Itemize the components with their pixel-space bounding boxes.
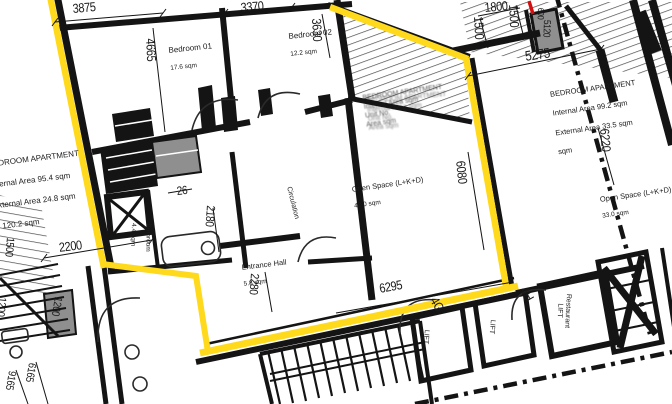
- apartment-block-right: BEDROOM APARTMENT Internal Area 99.2 sqm…: [548, 68, 645, 167]
- room-area: 4.4 sqm: [128, 223, 137, 251]
- dimension-label-1500-b: 1500: [505, 4, 522, 28]
- dimension-label-3370: 3370: [240, 0, 264, 16]
- floor-plan-drawing: [0, 0, 672, 404]
- room-label-bedroom02: Bedroom 02 12.2 sqm: [287, 17, 335, 67]
- apartment-external-area: External Area 24.8 sqm: [0, 190, 85, 211]
- left-double-wall-a: [88, 266, 106, 404]
- dimension-label-5120: 5120: [539, 20, 552, 38]
- room-area: 5.8 sqm: [243, 275, 289, 288]
- apartment-total-area: T 120.2 sqm: [0, 211, 87, 232]
- room-area: 42.0 sqm: [354, 193, 427, 211]
- apartment-total-area: sqm: [557, 136, 644, 158]
- center-right-wall: [472, 58, 512, 287]
- room-area: 17.6 sqm: [170, 60, 214, 72]
- apartment-internal-area: Internal Area 95.4 sqm: [0, 170, 82, 191]
- right-core-wall: [662, 248, 672, 340]
- dimension-label-3875: 3875: [72, 0, 96, 17]
- room-area: 12.2 sqm: [290, 46, 334, 58]
- apartment-block-left: BEDROOM APARTMENT Internal Area 95.4 sqm…: [0, 139, 88, 243]
- door-leaf-bedroom: [221, 96, 238, 132]
- dimension-label-4665: 4665: [142, 38, 159, 62]
- dimension-label-600: 600: [535, 8, 546, 20]
- apartment-name: BEDROOM APARTMENT: [0, 149, 80, 170]
- basin: [1, 328, 28, 344]
- dimension-label-1500-a: 1500: [470, 16, 487, 40]
- room-label-entrance-hall: Entrance Hall 5.8 sqm: [240, 249, 290, 298]
- room-label-bedroom01: Bedroom 01 17.6 sqm: [167, 31, 215, 81]
- door-frame-a: [198, 85, 216, 131]
- room-name: Entrance Hall: [241, 257, 287, 271]
- dimension-label-2180: 2180: [202, 205, 218, 227]
- route-right-vertical: [466, 58, 506, 286]
- room-label-lift-a: LIFT: [420, 329, 430, 344]
- stair-landing-rail-a: [270, 349, 425, 381]
- room-label-bathroom: Bathroom 4.4 sqm: [120, 223, 160, 253]
- hall-top-wall: [220, 236, 300, 246]
- bathroom-right-wall: [232, 152, 246, 268]
- route-left-jog: [102, 264, 208, 352]
- room-name: Bedroom 02: [288, 27, 332, 41]
- door-frame-c: [318, 94, 333, 118]
- appliance-block: [152, 136, 201, 178]
- room-label-open-space-right: Open Space (L+K+D) 33.0 sqm: [598, 176, 672, 229]
- room-label-lift-b: LIFT: [486, 319, 496, 334]
- boundary-line-bottom: [415, 352, 672, 404]
- room-name: Open Space (L+K+D): [351, 175, 424, 194]
- room-label-restaurant-lift: Restaurant LIFT: [553, 293, 572, 328]
- dimension-label-26: 26: [176, 183, 188, 198]
- dimension-label-2200: 2200: [58, 237, 83, 255]
- apartment-block-center-overlay-2: BEDROOM APARTMENT Internal Area sqm Unit…: [366, 90, 449, 133]
- room-area: 33.0 sqm: [602, 203, 672, 221]
- dimension-label-1800: 1800: [484, 0, 508, 16]
- toilet: [202, 242, 215, 255]
- hall-bottom-wall: [308, 258, 372, 262]
- room-name: Bathroom: [143, 223, 152, 251]
- dimension-label-5275: 5275: [524, 45, 551, 65]
- floor-plan: 3875 3370 3630 4665 1800 1500 1500 600 5…: [0, 0, 672, 404]
- apartment-external-area: External Area 33.5 sqm: [555, 116, 642, 138]
- fixture-circle-b: [133, 377, 147, 391]
- wc-bottom-left: [10, 346, 22, 358]
- dimension-label-6080: 6080: [452, 160, 470, 184]
- apartment-internal-area: Internal Area 99.2 sqm: [552, 97, 639, 119]
- door-arc-4g-room: [98, 298, 140, 342]
- room-name: Bedroom 01: [168, 41, 212, 55]
- room-name: Open Space (L+K+D): [599, 185, 672, 204]
- fixture-circle-a: [125, 345, 139, 359]
- apartment-name: BEDROOM APARTMENT: [549, 78, 636, 100]
- left-double-wall-b: [104, 266, 122, 404]
